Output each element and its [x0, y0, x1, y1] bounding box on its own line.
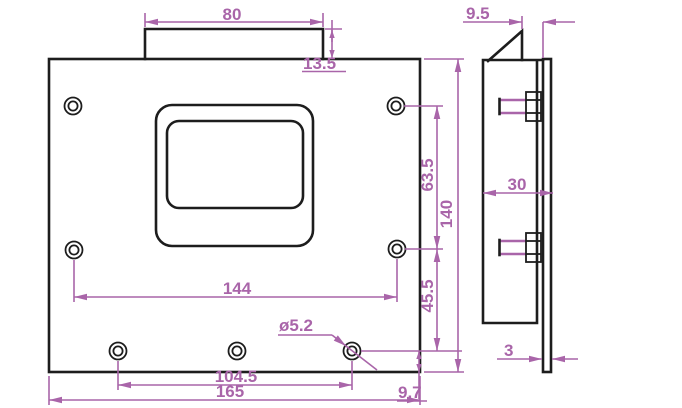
dim-label-back-plate-thickness: 3 — [504, 341, 513, 360]
hole-bottom-left — [110, 343, 127, 360]
dim-label-middle-hole-spacing: 144 — [223, 279, 252, 298]
dim-back-plate-thickness: 3 — [497, 341, 578, 360]
dim-hole-diameter: ø5.2 — [278, 316, 377, 370]
side-stud-upper — [500, 92, 542, 121]
dim-label-tab-height: 13.5 — [303, 54, 336, 73]
dim-label-upper-hole-span: 63.5 — [418, 158, 437, 191]
dim-label-tab-width: 80 — [223, 5, 242, 24]
dim-label-overall-width: 165 — [216, 382, 244, 401]
hole-top-left — [65, 98, 82, 115]
dim-label-tab-tip-offset: 9.5 — [466, 4, 490, 23]
dim-label-overall-depth: 30 — [508, 175, 527, 194]
front-view — [49, 29, 420, 372]
dim-tab-width: 80 — [145, 5, 323, 27]
dim-lower-hole-span: 45.5 — [361, 249, 462, 351]
dim-middle-hole-spacing: 144 — [74, 259, 397, 302]
dim-tab-tip-offset: 9.5 — [463, 4, 575, 58]
center-opening-outer — [156, 105, 313, 246]
cad-drawing-canvas: 80 13.5 63.5 45.5 140 9.7 — [0, 0, 682, 408]
side-bent-tab — [488, 31, 522, 61]
dim-label-overall-height: 140 — [437, 200, 456, 228]
hole-top-right — [388, 98, 405, 115]
dim-label-bottom-edge-offset: 9.7 — [398, 383, 422, 402]
dim-bottom-edge-offset: 9.7 — [397, 351, 427, 402]
center-opening-inner — [167, 121, 303, 208]
side-stud-lower — [500, 233, 542, 262]
hole-mid-left — [66, 242, 83, 259]
front-top-tab — [145, 29, 323, 59]
hole-mid-right — [389, 241, 406, 258]
hole-bottom-center — [229, 343, 246, 360]
dim-label-hole-diameter: ø5.2 — [279, 316, 313, 335]
cad-drawing: 80 13.5 63.5 45.5 140 9.7 — [0, 0, 682, 408]
dim-label-lower-hole-span: 45.5 — [418, 279, 437, 312]
side-view — [483, 31, 551, 372]
side-back-plate — [543, 59, 551, 372]
